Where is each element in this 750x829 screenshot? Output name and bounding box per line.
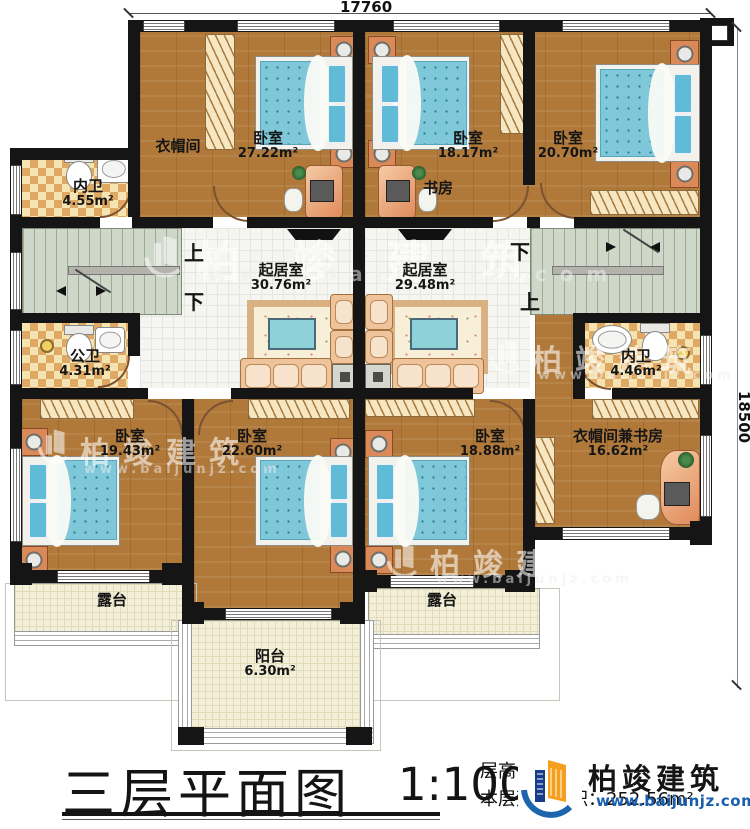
balcony-post: [178, 727, 204, 745]
stair-down-label: 下: [510, 236, 530, 265]
room-label-bath: 内卫4.46m²: [610, 348, 661, 379]
room-label-terrace: 露台: [97, 592, 127, 609]
side-table: [365, 364, 391, 390]
watermark-logo-icon: [385, 534, 423, 586]
wall: [128, 323, 140, 356]
desk-chair: [284, 188, 303, 212]
room-label-bath: 内卫4.55m²: [62, 178, 113, 209]
room-label-bedroom: 卧室20.70m²: [538, 130, 598, 161]
wall: [231, 388, 353, 399]
window: [11, 330, 21, 385]
wall: [10, 388, 148, 399]
room-label-closet-study: 衣帽间兼书房16.62m²: [573, 428, 663, 459]
balcony-post: [346, 727, 372, 745]
dimension-right-value: 18500: [735, 391, 750, 443]
stair-down-label: 下: [184, 286, 204, 315]
terrace-left-railing: [14, 631, 189, 646]
wall: [128, 160, 140, 217]
desk-chair: [636, 494, 660, 520]
room-label-bedroom: 卧室18.17m²: [438, 130, 498, 161]
window: [11, 165, 21, 215]
wardrobe-strip: [248, 399, 350, 419]
window: [57, 571, 150, 582]
window: [562, 528, 670, 539]
wall: [353, 20, 365, 620]
balcony-railing-right: [360, 620, 374, 730]
nightstand: [365, 430, 393, 458]
room-label-living: 起居室30.76m²: [251, 262, 311, 293]
balcony-railing-left: [178, 620, 192, 730]
coffee-table: [268, 318, 316, 350]
room-label-bath: 公卫4.31m²: [59, 348, 110, 379]
plant-icon: [678, 452, 694, 468]
balcony-railing-bottom: [178, 728, 374, 744]
room-label-terrace: 露台: [427, 592, 457, 609]
stair-arrow-icon: [56, 286, 66, 296]
room-label-balcony: 阳台6.30m²: [244, 648, 295, 679]
watermark-logo-icon: [488, 330, 526, 382]
plant-icon: [412, 166, 426, 180]
stair-arrow-icon: [606, 242, 616, 252]
room-label-bedroom: 卧室27.22m²: [238, 130, 298, 161]
light-fixture-icon: [40, 339, 54, 353]
wardrobe-strip: [40, 399, 134, 419]
company-logo-icon: [518, 755, 582, 821]
wall: [10, 313, 140, 323]
window: [393, 21, 500, 31]
wall: [573, 313, 712, 323]
wardrobe-strip: [205, 34, 235, 150]
wall-post: [162, 563, 190, 585]
window: [562, 21, 670, 31]
stair-up-label: 上: [520, 286, 540, 315]
bed: [595, 64, 700, 162]
wardrobe-strip: [590, 190, 699, 215]
plant-icon: [292, 166, 306, 180]
room-label-study: 书房: [423, 180, 453, 197]
room-label-closet: 衣帽间: [155, 138, 200, 155]
stair-arrow-icon: [96, 286, 106, 296]
room-label-bedroom: 卧室18.88m²: [460, 428, 520, 459]
wall: [612, 388, 712, 399]
title-underline: [62, 812, 440, 816]
wall-post: [10, 563, 32, 585]
wardrobe-strip: [365, 399, 475, 417]
watermark-url: www.baijunjz.com: [84, 462, 281, 477]
dimension-line-top: [128, 13, 712, 14]
company-url: www.baijunjz.com: [596, 792, 750, 810]
dimension-line-right: [737, 28, 738, 688]
wall: [574, 217, 712, 228]
window: [701, 435, 711, 517]
room-label-bedroom: 卧室22.60m²: [222, 428, 282, 459]
wardrobe-strip: [592, 399, 699, 419]
wall: [128, 20, 140, 160]
wall-post: [690, 521, 712, 545]
room-label-living: 起居室29.48m²: [395, 262, 455, 293]
wall: [22, 217, 100, 228]
nightstand: [670, 160, 699, 188]
wardrobe-strip: [535, 437, 555, 524]
stair-arrow-icon: [650, 242, 660, 252]
bed: [368, 456, 470, 546]
computer-monitor-icon: [310, 180, 334, 202]
dimension-top-value: 17760: [340, 0, 392, 16]
window: [237, 21, 335, 31]
drawing-title: 三层平面图: [62, 752, 352, 828]
watermark-logo-icon: [142, 226, 188, 286]
stair-up-label: 上: [184, 237, 204, 266]
window: [143, 21, 185, 31]
wall: [365, 388, 473, 399]
window: [11, 252, 21, 310]
watermark-logo-icon: [36, 420, 74, 472]
wall-post: [182, 602, 204, 624]
watermark-url: www.baijunjz.com: [436, 572, 633, 587]
terrace-right-railing: [368, 634, 540, 649]
coffee-table: [410, 318, 458, 350]
window: [225, 609, 332, 619]
floor-plan-canvas: 17760 18500 柏竣建筑 www.baijunjz.com 柏竣建筑 w…: [0, 0, 750, 829]
wall: [523, 32, 535, 185]
wall: [10, 148, 140, 160]
window: [11, 448, 21, 542]
armchair: [365, 294, 393, 330]
wall-post: [353, 570, 377, 592]
room-label-bedroom: 卧室19.43m²: [100, 428, 160, 459]
wall-post: [340, 602, 365, 624]
armchair: [365, 330, 393, 364]
computer-monitor-icon: [664, 482, 690, 506]
computer-monitor-icon: [386, 180, 410, 202]
title-underline-thin: [62, 819, 440, 820]
